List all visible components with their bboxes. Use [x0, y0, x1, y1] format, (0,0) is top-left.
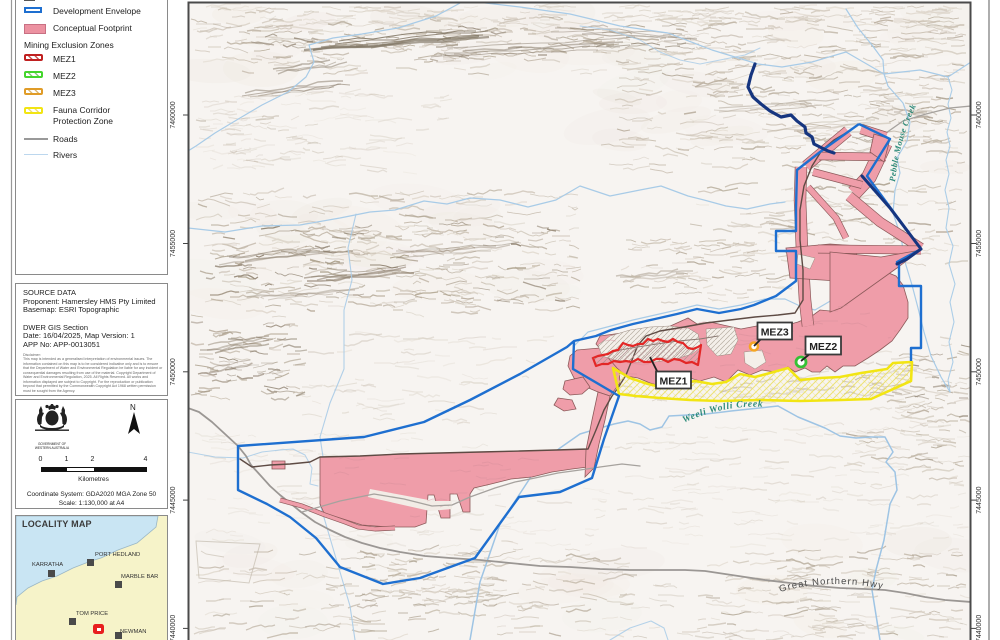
- svg-text:7460000: 7460000: [976, 101, 983, 128]
- svg-text:7440000: 7440000: [976, 615, 983, 640]
- svg-text:7450000: 7450000: [170, 358, 177, 385]
- svg-text:7445000: 7445000: [170, 486, 177, 513]
- svg-text:7455000: 7455000: [976, 230, 983, 257]
- svg-text:7455000: 7455000: [170, 230, 177, 257]
- svg-text:MEZ2: MEZ2: [809, 341, 837, 353]
- svg-text:MEZ1: MEZ1: [659, 376, 687, 388]
- svg-text:7460000: 7460000: [170, 101, 177, 128]
- svg-text:MEZ3: MEZ3: [761, 327, 789, 339]
- svg-text:7445000: 7445000: [976, 486, 983, 513]
- svg-text:7450000: 7450000: [976, 358, 983, 385]
- svg-text:7440000: 7440000: [170, 615, 177, 640]
